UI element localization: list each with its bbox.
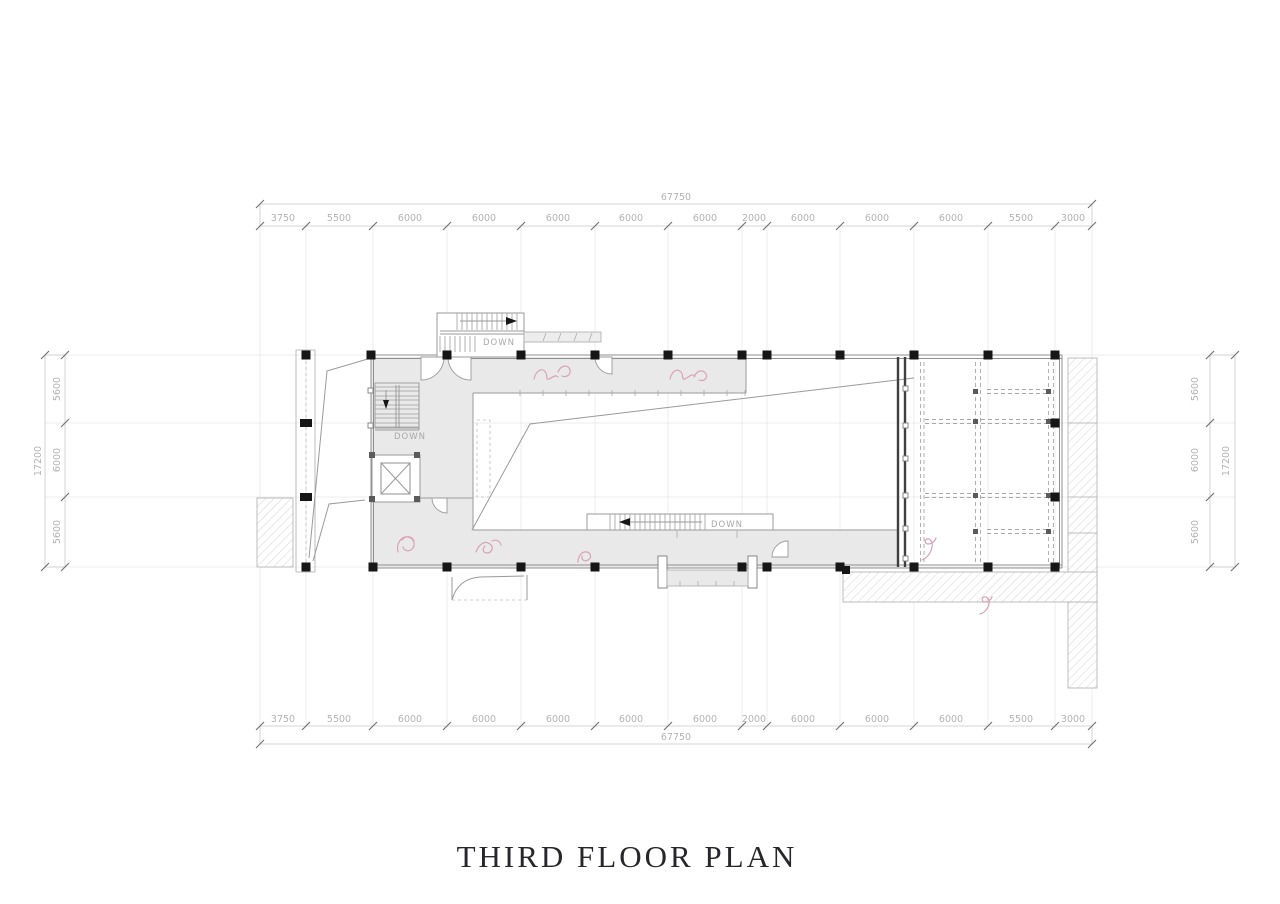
architectural-sheet: 67750 3750 5500 6000 6000 6000 6000 6000…: [0, 0, 1280, 904]
pier-left: [658, 556, 667, 588]
floor-plan-drawing: 67750 3750 5500 6000 6000 6000 6000 6000…: [0, 0, 1280, 904]
terrace-hatch: [843, 572, 1097, 602]
dashed-rail-left: [921, 362, 925, 562]
leader-line: [472, 378, 914, 530]
dimension-top: 67750 3750 5500 6000 6000 6000 6000 6000…: [256, 192, 1096, 230]
dim-bottom-seg-2: 6000: [398, 714, 422, 725]
east-wall: [1060, 355, 1063, 568]
sheet-title: THIRD FLOOR PLAN: [457, 839, 798, 874]
dimension-left: 17200 5600 6000 5600: [33, 351, 69, 571]
dim-top-seg-8: 6000: [791, 213, 815, 224]
dimension-bottom: 67750 3750 5500 6000 6000 6000 6000 6000…: [256, 714, 1096, 748]
dim-right-seg-1: 6000: [1190, 448, 1201, 472]
dim-bottom-seg-6: 6000: [693, 714, 717, 725]
dim-left-seg-2: 5600: [52, 520, 63, 544]
down-label-left: DOWN: [394, 432, 426, 442]
down-label-bottom: DOWN: [711, 520, 743, 530]
left-hatch-pad: [257, 498, 293, 567]
frame-rails: [976, 362, 1054, 562]
grid-lines: [45, 226, 1235, 726]
down-label-top: DOWN: [483, 338, 515, 348]
canopy-below: [452, 575, 527, 600]
top-stair: DOWN: [437, 313, 601, 357]
dim-right-seg-2: 5600: [1190, 520, 1201, 544]
dim-bottom-seg-8: 6000: [791, 714, 815, 725]
right-hatch-strip: [1068, 358, 1097, 688]
dim-top-seg-5: 6000: [619, 213, 643, 224]
dim-bottom-seg-11: 5500: [1009, 714, 1033, 725]
dim-top-seg-4: 6000: [546, 213, 570, 224]
floor-slab: [371, 357, 897, 567]
dim-bottom-seg-5: 6000: [619, 714, 643, 725]
building-plan: [368, 355, 1062, 568]
dim-top-seg-2: 6000: [398, 213, 422, 224]
dim-top-seg-11: 5500: [1009, 213, 1033, 224]
dim-right-seg-0: 5600: [1190, 377, 1201, 401]
dim-bottom-seg-7: 2000: [742, 714, 766, 725]
dim-top-seg-3: 6000: [472, 213, 496, 224]
dim-top-total: 67750: [661, 192, 691, 203]
dim-left-total: 17200: [33, 446, 44, 476]
dim-bottom-seg-9: 6000: [865, 714, 889, 725]
dim-top-seg-12: 3000: [1061, 213, 1085, 224]
dashed-opening: [477, 420, 490, 497]
canopy-lines: [309, 358, 371, 561]
right-hall: [898, 357, 1054, 567]
dim-top-seg-9: 6000: [865, 213, 889, 224]
dimension-right: 5600 6000 5600 17200: [1190, 351, 1239, 571]
dim-top-seg-7: 2000: [742, 213, 766, 224]
dim-top-seg-0: 3750: [271, 213, 295, 224]
west-colonnade: [296, 350, 371, 572]
elevator-shaft: [369, 452, 420, 502]
dim-top-seg-1: 5500: [327, 213, 351, 224]
dim-bottom-total: 67750: [661, 732, 691, 743]
figure-sketch-8: [922, 538, 936, 560]
frame-rungs: [925, 390, 1054, 534]
dim-bottom-seg-4: 6000: [546, 714, 570, 725]
dim-left-seg-1: 6000: [52, 448, 63, 472]
balcony-slab: [667, 570, 748, 586]
pier-right: [748, 556, 757, 588]
dim-bottom-seg-12: 3000: [1061, 714, 1085, 725]
dim-bottom-seg-1: 5500: [327, 714, 351, 725]
dim-top-seg-10: 6000: [939, 213, 963, 224]
dim-top-seg-6: 6000: [693, 213, 717, 224]
dim-left-seg-0: 5600: [52, 377, 63, 401]
dim-bottom-seg-3: 6000: [472, 714, 496, 725]
dim-bottom-seg-10: 6000: [939, 714, 963, 725]
dim-bottom-seg-0: 3750: [271, 714, 295, 725]
dim-right-total: 17200: [1221, 446, 1232, 476]
